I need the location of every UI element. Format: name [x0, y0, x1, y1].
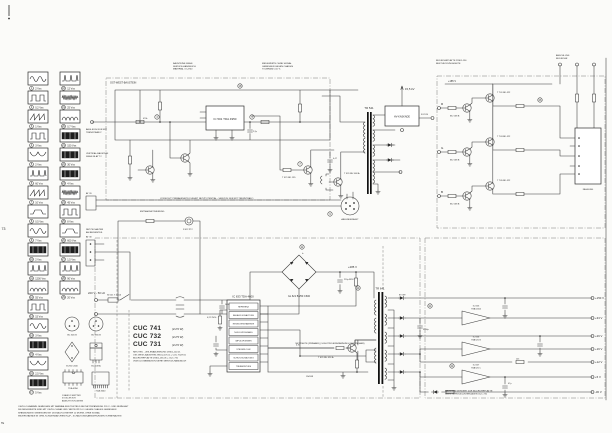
svg-text:TREIBERSTUFE: TREIBERSTUFE	[236, 366, 252, 368]
svg-text:BC 558 B: BC 558 B	[450, 160, 460, 162]
svg-text:3: 3	[156, 116, 158, 119]
svg-text:2 Vss: 2 Vss	[35, 163, 42, 166]
svg-text:0,7 Vss: 0,7 Vss	[67, 125, 76, 128]
svg-text:MATERIAL 72-4700: MATERIAL 72-4700	[173, 68, 193, 71]
regulator: IC 656 TBA 625 B	[462, 337, 490, 357]
svg-text:OST-WEST-BAUSTEIN 29301-107.0: OST-WEST-BAUSTEIN 29301-107.01 = CUC 732…	[133, 354, 187, 357]
svg-text:ABGLEICH NUR MIT: ABGLEICH NUR MIT	[86, 128, 107, 131]
driver-transistor-label: BC 558 B	[450, 116, 460, 118]
svg-text:1 Vss: 1 Vss	[35, 125, 42, 128]
svg-text:OSZILLOGRAMME GEMESSEN MIT FAR: OSZILLOGRAMME GEMESSEN MIT FARBBALKEN-TE…	[18, 405, 129, 408]
schematic-page: 73 TE 12 Vss 20,2 Vss 31 Vss 43 Vss 52 V…	[0, 0, 612, 433]
pinout-legend: BC 546 B BC 556 B B 250 C600 BU 508 A TD…	[62, 317, 109, 402]
svg-text:TOLERANZ ±10 %: TOLERANZ ±10 %	[262, 68, 280, 71]
svg-text:BILDROHR: BILDROHR	[556, 58, 568, 60]
transistor-pinout: BC 546 B	[65, 317, 79, 337]
waveform-thumb: 26600 Vss	[60, 224, 80, 242]
waveform-thumb: 43 Vss	[28, 129, 48, 147]
channel-id: R	[441, 102, 444, 106]
regulator: IC 655 TBA 625 A	[462, 306, 490, 326]
waveform-thumb: 20,2 Vss	[28, 91, 48, 109]
smps-transformer: TR 641	[374, 287, 386, 385]
flyback-transformer: TR 541	[363, 106, 374, 194]
waveform-thumb: 2890 Vss	[60, 262, 80, 280]
region-east-west	[106, 78, 330, 200]
svg-text:BY 399: BY 399	[399, 295, 406, 297]
rgb-board: +185 V R T 701 BF 422 BC 558 B G T 703 B…	[438, 63, 602, 210]
secondary-section: IC 655 TBA 625 A IC 656 TBA 625 B IC 657…	[388, 296, 604, 397]
ground-symbol	[188, 172, 192, 176]
dip-pinout: TDA 4950	[63, 370, 83, 391]
rail-label: +150 V	[595, 296, 604, 300]
registration-mark	[8, 5, 10, 19]
svg-text:600 Vss: 600 Vss	[67, 239, 77, 242]
rgb-channel: B T 705 BF 422 BC 558 B	[438, 84, 576, 210]
waveform-thumb: 21150 Vss	[60, 129, 80, 147]
driver-label: T 521 BD 135	[282, 177, 296, 179]
svg-text:G: G	[441, 146, 444, 150]
svg-text:TDA 4950: TDA 4950	[68, 387, 79, 390]
svg-text:TBA 625 B: TBA 625 B	[471, 339, 481, 342]
waveform-thumb: 111200 Vss	[28, 262, 48, 280]
svg-text:3 KOLLEKTOR: 3 KOLLEKTOR	[62, 398, 76, 400]
svg-text:VIDEO-KOMBINATION SIEHE SERVI: VIDEO-KOMBINATION SIEHE SERVICE-HANDBUCH	[133, 360, 187, 363]
waveform-thumb: 1315 Vss	[28, 300, 48, 318]
degauss-label: ENTMAGNETISIERUNG	[140, 210, 165, 213]
yoke-connector: ABLENKEINHEIT	[341, 197, 359, 221]
svg-text:8 Vss: 8 Vss	[67, 220, 74, 223]
focus-label: FOCUS	[421, 114, 429, 116]
page-number: 73	[2, 227, 6, 231]
separation-note: NETZSEITE (PRIMAER) | SCHUTZKLEINSPANNUN…	[296, 342, 365, 345]
pinout-note: 1 BASIS 2 EMITTER	[62, 394, 81, 397]
svg-text:IC 655: IC 655	[473, 306, 480, 308]
svg-text:IC 656: IC 656	[473, 337, 480, 339]
svg-text:0,47: 0,47	[333, 158, 338, 160]
capacitor	[248, 130, 253, 132]
waveform-thumb: 1255 Vss	[28, 281, 48, 299]
svg-text:NETZTEIL - ZEILENABLENKUNG 29: NETZTEIL - ZEILENABLENKUNG 29301-102.21	[133, 351, 181, 354]
resistor	[298, 104, 301, 112]
line-transistor-label: T 531 BU 508 A	[344, 172, 360, 175]
connector-at30-label: AT 30	[86, 236, 92, 239]
transistor-pinout: BC 556 B	[89, 317, 103, 337]
svg-text:BAUSTEIN GEHOERT ZUR BILDROHRP: BAUSTEIN GEHOERT ZUR BILDROHRPLATTE	[445, 390, 493, 393]
svg-text:REGELVERSTAERKER: REGELVERSTAERKER	[233, 323, 255, 326]
svg-text:BESTUECKUNGSSEITE: BESTUECKUNGSSEITE	[436, 63, 461, 65]
svg-text:+12 V: +12 V	[595, 360, 603, 364]
svg-text:TDA 4600: TDA 4600	[96, 390, 107, 393]
svg-text:SERVICE-HANDBUCH: SERVICE-HANDBUCH	[173, 65, 196, 68]
waveform-thumb: 2230 Vss	[60, 148, 80, 166]
connector-at20-label: AT 20	[86, 192, 92, 195]
svg-text:BC 556 B: BC 556 B	[91, 335, 101, 337]
svg-text:TRENNTRAFO!: TRENNTRAFO!	[86, 131, 102, 134]
svg-text:0,22 250V~: 0,22 250V~	[207, 317, 218, 319]
svg-text:GEMESSEN GEGEN CHASSIS: GEMESSEN GEGEN CHASSIS	[262, 65, 294, 68]
svg-text:+16 V: +16 V	[595, 347, 603, 351]
svg-text:VERTIKAL-BAUSTEIN: VERTIKAL-BAUSTEIN	[86, 152, 109, 155]
waveform-thumb: 52 Vss	[28, 148, 48, 166]
svg-text:WIDERSTAENDE IN OHM, KONDENSAT: WIDERSTAENDE IN OHM, KONDENSATOREN IN pF…	[18, 415, 122, 418]
svg-text:SIEHE SERVICE-UNTERLAGEN CUC 7: SIEHE SERVICE-UNTERLAGEN CUC 720	[445, 393, 488, 396]
ew-ic-label: IC 501 TDA 4950	[214, 117, 237, 121]
svg-text:30 Vss: 30 Vss	[67, 163, 75, 166]
svg-text:0,2 Vss: 0,2 Vss	[35, 106, 44, 109]
primary-cap	[338, 280, 343, 282]
rgb-channel: R T 701 BF 422 BC 558 B	[438, 84, 576, 138]
svg-text:0,5 Vss: 0,5 Vss	[35, 220, 44, 223]
rgb-channel: G T 703 BF 422 BC 558 B	[438, 84, 576, 166]
svg-text:TBA 625 A: TBA 625 A	[471, 308, 481, 311]
svg-text:MESSWERTE OHNE SIGNAL: MESSWERTE OHNE SIGNAL	[262, 62, 292, 65]
switch-transistor-label: T 631 BU 426 A	[318, 356, 334, 359]
bridge-pinout: B 250 C600	[65, 342, 79, 368]
svg-text:20 Vss: 20 Vss	[67, 296, 75, 299]
svg-text:55 Vss: 55 Vss	[35, 296, 43, 299]
waveform-thumb: 271,5 Vss	[60, 243, 80, 261]
svg-text:+33 V: +33 V	[595, 316, 603, 320]
smps-ic-label: IC 633 TDA 4600	[232, 295, 254, 299]
corner-mark: TE	[1, 422, 5, 425]
svg-text:4,7k: 4,7k	[296, 345, 300, 347]
waveform-thumb: 660 Vss	[28, 167, 48, 185]
svg-text:BAUSTEINE SIEHE: BAUSTEINE SIEHE	[173, 62, 193, 65]
svg-text:IMPULSFORMER: IMPULSFORMER	[235, 341, 252, 343]
svg-text:4 Vss: 4 Vss	[35, 353, 42, 356]
svg-text:10 Vss: 10 Vss	[35, 201, 43, 204]
svg-text:7: 7	[299, 163, 301, 166]
svg-text:60 Vss: 60 Vss	[35, 182, 43, 185]
degauss-section: ENTMAGNETISIERUNG R 622 PTC	[118, 210, 200, 314]
svg-text:1N4148: 1N4148	[306, 376, 314, 378]
svg-text:45 Vss: 45 Vss	[67, 201, 75, 204]
output-transistor-label: T 701 BF 422	[497, 92, 511, 94]
waveform-thumb: 200,7 Vss	[60, 110, 80, 128]
svg-text:3 Vss: 3 Vss	[35, 334, 42, 337]
svg-text:AM BEDIENTEIL: AM BEDIENTEIL	[86, 231, 103, 234]
note-blocks: BAUSTEINE SIEHE SERVICE-HANDBUCH MATERIA…	[86, 54, 570, 234]
svg-text:4 Vss: 4 Vss	[67, 182, 74, 185]
connector-at20	[86, 196, 96, 210]
svg-text:2,2µ: 2,2µ	[253, 131, 258, 133]
regulator: IC 657 TBA 625 C	[462, 365, 490, 385]
bridge-label: GL 621 B 250 C600	[288, 295, 311, 298]
svg-text:5: 5	[251, 116, 253, 119]
svg-text:ANSICHT VON UNTEN: ANSICHT VON UNTEN	[62, 399, 84, 402]
flyback-label: TR 541	[364, 106, 374, 110]
switch-transistor	[348, 344, 356, 352]
svg-text:3 Vss: 3 Vss	[35, 144, 42, 147]
resistor	[158, 102, 161, 110]
svg-text:B: B	[441, 190, 443, 194]
waveform-thumb: 175 Vss	[28, 376, 48, 394]
svg-text:SIEHE BLATT 2: SIEHE BLATT 2	[86, 155, 102, 158]
warning-note: VORSICHT! PRIMAERSEITE FUEHRT NETZPOTENT…	[160, 197, 254, 200]
sip-pinout: TDA 4600	[92, 372, 109, 393]
svg-text:BC 558 B: BC 558 B	[450, 204, 460, 206]
model-detail: (2x70 W)	[172, 327, 183, 331]
svg-text:NULLDURCHGANG: NULLDURCHGANG	[234, 331, 253, 334]
smps-transformer-section: TR 641 T 631 BU 426 A NETZSEITE (PRIMAER…	[268, 246, 387, 398]
east-west-section: IC 501 TDA 4950 OST-WEST-BAUSTEIN	[91, 82, 359, 183]
transistor	[181, 154, 189, 162]
wires-top-left	[92, 90, 358, 172]
waveform-thumb: 97 Vss	[28, 224, 48, 242]
waveform-thumb: 80,5 Vss	[28, 205, 48, 223]
svg-text:BU 508 A: BU 508 A	[91, 365, 101, 368]
svg-text:90 Vss: 90 Vss	[67, 277, 75, 280]
bottom-notes: OSZILLOGRAMME GEMESSEN MIT FARBBALKEN-TE…	[18, 390, 493, 418]
svg-text:+26 V: +26 V	[595, 334, 603, 338]
waveform-thumb: 258 Vss	[60, 205, 80, 223]
waveform-label: 2 Vss	[35, 87, 42, 90]
svg-text:ANLAUF-SCHALTUNG: ANLAUF-SCHALTUNG	[233, 314, 254, 317]
waveform-thumb: 154 Vss	[28, 338, 48, 356]
svg-text:BC 546 B: BC 546 B	[67, 335, 77, 337]
svg-text:(2x75 W): (2x75 W)	[172, 335, 183, 339]
waveform-thumb: 12 Vss	[28, 72, 48, 90]
svg-text:CUC 732: CUC 732	[133, 333, 161, 340]
svg-text:25 Vss: 25 Vss	[67, 106, 75, 109]
model-name: CUC 741	[133, 325, 161, 332]
waveform-thumb: 710 Vss	[28, 186, 48, 204]
svg-text:220µ 385V: 220µ 385V	[344, 279, 354, 281]
svg-text:15 Vss: 15 Vss	[35, 315, 43, 318]
primary-voltage-label: +285 V	[348, 265, 357, 269]
svg-text:2,5 Vss: 2,5 Vss	[35, 372, 44, 375]
hv-voltage-label: 15,5 kV	[405, 87, 415, 91]
svg-text:DIE MESSWERTE SIND MIT OSZILLO: DIE MESSWERTE SIND MIT OSZILLOGRAF UND T…	[18, 408, 117, 411]
svg-text:1200 Vss: 1200 Vss	[35, 277, 46, 280]
svg-text:ANSCHLUSS: ANSCHLUSS	[556, 54, 570, 57]
waveform-thumb: 2920 Vss	[60, 281, 80, 299]
svg-text:47µ: 47µ	[508, 383, 512, 385]
svg-text:-30 V: -30 V	[595, 390, 602, 394]
to220-pinout: BU 508 A	[90, 343, 102, 368]
x-capacitor	[220, 306, 225, 308]
svg-text:2 Vss: 2 Vss	[35, 258, 42, 261]
svg-text:NETZSCHALTER: NETZSCHALTER	[86, 228, 104, 231]
svg-text:12 Vss: 12 Vss	[67, 87, 75, 90]
mains-label: 220 V~ 50 Hz	[88, 291, 106, 295]
title-block: CUC 741 (2x70 W) CUC 732 (2x75 W) CUC 73…	[133, 325, 187, 363]
waveform-thumb: 143 Vss	[28, 319, 48, 337]
hv-block-label: HV-KASKADE	[394, 116, 410, 119]
svg-text:SCHUTZSCHALTUNG: SCHUTZSCHALTUNG	[233, 357, 254, 360]
svg-text:SPANNUNGEN: GEMESSEN MIT DIGIT: SPANNUNGEN: GEMESSEN MIT DIGITALVOLTMETE…	[18, 411, 101, 414]
smps-ic: IC 633 TDA 4600 REFERENZ ANLAUF-SCHALTUN…	[208, 295, 268, 377]
ew-region-label: OST-WEST-BAUSTEIN	[110, 82, 136, 85]
schematic-sheet: 73 TE 12 Vss 20,2 Vss 31 Vss 43 Vss 52 V…	[0, 0, 612, 433]
line-transistor	[334, 178, 342, 186]
hv-cascade: HV-KASKADE 15,5 kV FOCUS	[385, 86, 434, 126]
waveform-thumb: 1812 Vss	[60, 72, 80, 90]
waveform-thumb: 102 Vss	[28, 243, 48, 261]
svg-text:470k: 470k	[143, 118, 147, 120]
svg-text:1,5 Vss: 1,5 Vss	[67, 258, 76, 261]
voltage-rails: +150 V +33 V +26 V +16 V +12 V +5 V -30 …	[591, 296, 604, 394]
svg-text:CUC 731: CUC 731	[133, 341, 161, 348]
svg-text:T 703 BF 422: T 703 BF 422	[497, 136, 511, 138]
plus-mark: +	[302, 251, 304, 255]
waveform-thumb: 234 Vss	[60, 167, 80, 185]
svg-text:9: 9	[329, 213, 331, 216]
svg-text:(2x70 W): (2x70 W)	[172, 343, 183, 347]
svg-text:BILDROHRPLATTE 29301-156: BILDROHRPLATTE 29301-156	[436, 59, 467, 62]
waveform-thumb: 162,5 Vss	[28, 357, 48, 375]
svg-text:3300µ: 3300µ	[423, 329, 429, 331]
svg-text:7 Vss: 7 Vss	[35, 239, 42, 242]
waveform-thumb: 1925 Vss	[60, 91, 80, 109]
svg-text:+5 V: +5 V	[595, 375, 601, 379]
crt-socket: FASSUNG	[570, 128, 601, 191]
video-rail-label: +185 V	[448, 80, 456, 83]
fuse-label: SI 621 T 2,5 A	[107, 294, 121, 297]
svg-text:BILDROHRPLATTE 29301-156.05: BILDROHRPLATTE 29301-156.05 = CUC 731	[133, 357, 179, 360]
svg-text:150 Vss: 150 Vss	[67, 144, 77, 147]
svg-text:B 250 C600: B 250 C600	[66, 366, 78, 368]
svg-text:T 705 BF 422: T 705 BF 422	[497, 180, 511, 182]
svg-text:STEUERLOGIK: STEUERLOGIK	[236, 349, 251, 351]
svg-text:TBA 625 C: TBA 625 C	[471, 367, 481, 370]
waveform-thumb: 31 Vss	[28, 110, 48, 128]
svg-text:IC 657: IC 657	[473, 365, 480, 367]
smps-transformer-label: TR 641	[375, 287, 385, 291]
svg-text:5 Vss: 5 Vss	[35, 391, 42, 394]
yoke-connector-label: ABLENKEINHEIT	[341, 218, 359, 221]
startup-resistor	[354, 278, 357, 286]
svg-text:REFERENZ: REFERENZ	[238, 307, 250, 309]
waveform-thumb: 2445 Vss	[60, 186, 80, 204]
line-output-section: T 521 BD 135 T 531 BU 508 A TR 541 HV-KA…	[86, 86, 434, 221]
fuse	[108, 298, 118, 302]
crt-socket-label: FASSUNG	[583, 188, 594, 191]
ptc-label: R 622 PTC	[183, 229, 193, 231]
svg-text:100n: 100n	[225, 304, 229, 306]
